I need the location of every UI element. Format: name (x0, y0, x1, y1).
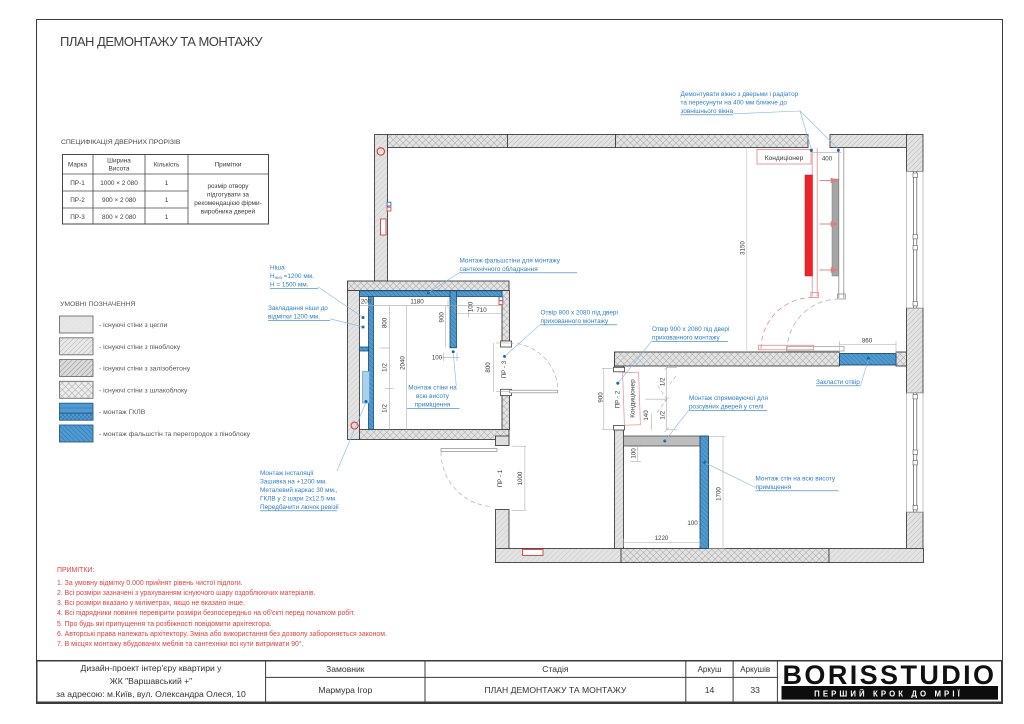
svg-text:Отвір 900 х 2080 під двері: Отвір 900 х 2080 під двері (652, 325, 729, 333)
svg-text:прихованного монтажу: прихованного монтажу (652, 335, 721, 342)
svg-text:710: 710 (476, 307, 487, 314)
svg-text:2040: 2040 (399, 356, 406, 370)
svg-text:сантехнічного обладнання: сантехнічного обладнання (460, 265, 539, 273)
svg-text:Монтаж стіни на: Монтаж стіни на (408, 384, 457, 392)
svg-text:ПР - 1: ПР - 1 (497, 469, 504, 487)
svg-text:H = 1500 мм.: H = 1500 мм. (270, 282, 309, 289)
svg-text:100: 100 (468, 301, 475, 312)
svg-text:1/2: 1/2 (659, 410, 666, 419)
svg-text:ПР - 2: ПР - 2 (614, 390, 621, 408)
svg-text:Металевий каркас 30 мм.,: Металевий каркас 30 мм., (260, 486, 338, 494)
svg-text:Передбачити лючок ревізії: Передбачити лючок ревізії (260, 503, 339, 511)
svg-text:відмітки 1200 мм.: відмітки 1200 мм. (268, 313, 320, 321)
svg-text:900: 900 (597, 392, 604, 403)
svg-text:1/2: 1/2 (381, 404, 388, 413)
svg-text:100: 100 (432, 355, 443, 362)
svg-text:200: 200 (361, 299, 372, 306)
svg-text:Закласти отвір: Закласти отвір (816, 378, 860, 386)
svg-text:Монтаж стін на всю висоту: Монтаж стін на всю висоту (756, 475, 836, 483)
svg-text:140: 140 (643, 410, 650, 421)
svg-text:ГКЛВ у 2 шари 2х12.5 мм.: ГКЛВ у 2 шари 2х12.5 мм. (260, 496, 337, 503)
svg-text:3150: 3150 (740, 241, 747, 255)
svg-text:Монтаж спрямовуючої для: Монтаж спрямовуючої для (689, 395, 768, 402)
svg-text:Монтаж інсталяції: Монтаж інсталяції (260, 469, 314, 477)
svg-text:Ніша: Ніша (270, 264, 285, 272)
svg-text:Hниз =1200 мм.: Hниз =1200 мм. (270, 273, 314, 280)
svg-text:860: 860 (862, 338, 873, 345)
svg-text:800: 800 (485, 362, 492, 373)
svg-text:ПР - 3: ПР - 3 (501, 360, 508, 378)
svg-text:Закладання ніши до: Закладання ніши до (268, 304, 328, 312)
svg-text:100: 100 (687, 520, 698, 527)
svg-text:зовнішнього вікна: зовнішнього вікна (681, 107, 734, 115)
svg-text:900: 900 (438, 312, 445, 323)
svg-text:Отвір 800 х 2080 під двері: Отвір 800 х 2080 під двері (541, 309, 618, 317)
svg-text:100: 100 (631, 448, 638, 459)
svg-text:Демонтувати вікно з дверьми і: Демонтувати вікно з дверьми і радіатор (681, 90, 799, 98)
svg-text:Кондиціонер: Кондиціонер (629, 379, 637, 418)
svg-text:1/2: 1/2 (659, 377, 666, 386)
svg-text:та пересунути на 400 мм ближче: та пересунути на 400 мм ближче до (681, 99, 788, 107)
svg-text:приміщення: приміщення (415, 401, 451, 409)
svg-text:Кондиціонер: Кондиціонер (765, 154, 804, 162)
svg-text:1220: 1220 (655, 535, 669, 542)
svg-text:розсувних дверей у стелі: розсувних дверей у стелі (689, 403, 763, 411)
svg-text:800: 800 (381, 317, 388, 328)
svg-text:Монтаж фальшстіни для монтажу: Монтаж фальшстіни для монтажу (460, 257, 561, 265)
svg-text:1000: 1000 (517, 471, 524, 485)
svg-text:приміщення: приміщення (756, 483, 792, 491)
svg-text:всю висоту: всю висоту (416, 393, 450, 400)
svg-text:1/2: 1/2 (381, 363, 388, 372)
svg-text:400: 400 (822, 155, 833, 162)
svg-text:прихованного монтажу: прихованного монтажу (541, 318, 610, 325)
svg-text:1700: 1700 (715, 487, 722, 501)
svg-text:1180: 1180 (410, 299, 424, 306)
svg-text:Зашивка на +1200 мм.: Зашивка на +1200 мм. (260, 479, 327, 486)
